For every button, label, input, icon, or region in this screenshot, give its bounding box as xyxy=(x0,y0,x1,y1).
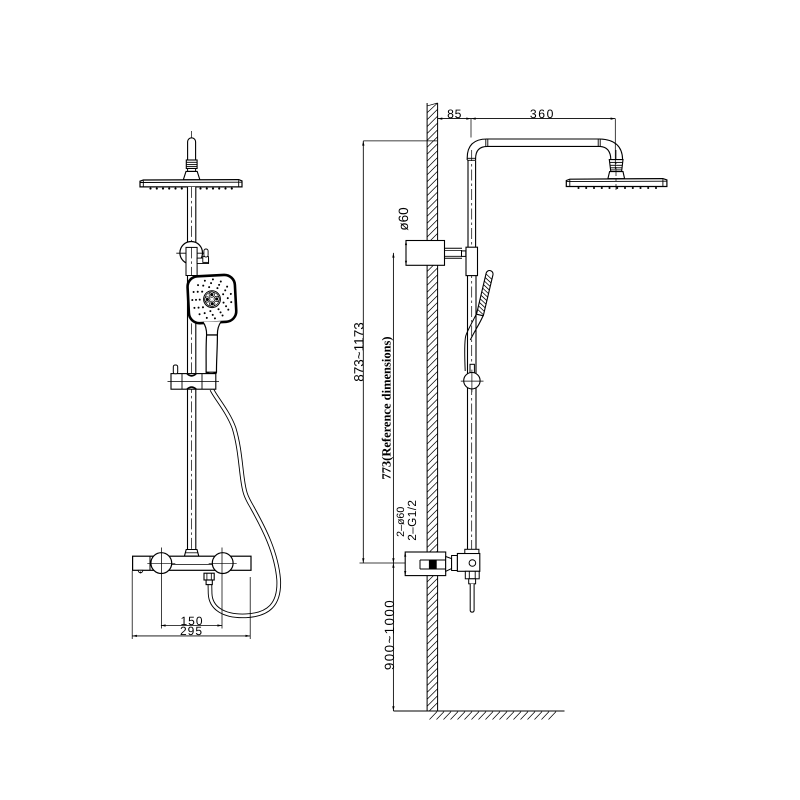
svg-text:85: 85 xyxy=(447,107,462,121)
svg-text:295: 295 xyxy=(180,624,203,638)
svg-text:2–G1/2: 2–G1/2 xyxy=(405,500,419,541)
svg-text:360: 360 xyxy=(530,107,555,121)
svg-text:773(Reference dimensions): 773(Reference dimensions) xyxy=(380,336,394,479)
svg-text:873~1173: 873~1173 xyxy=(352,322,367,381)
svg-text:900~1000: 900~1000 xyxy=(382,599,397,670)
svg-text:ø60: ø60 xyxy=(396,207,411,230)
